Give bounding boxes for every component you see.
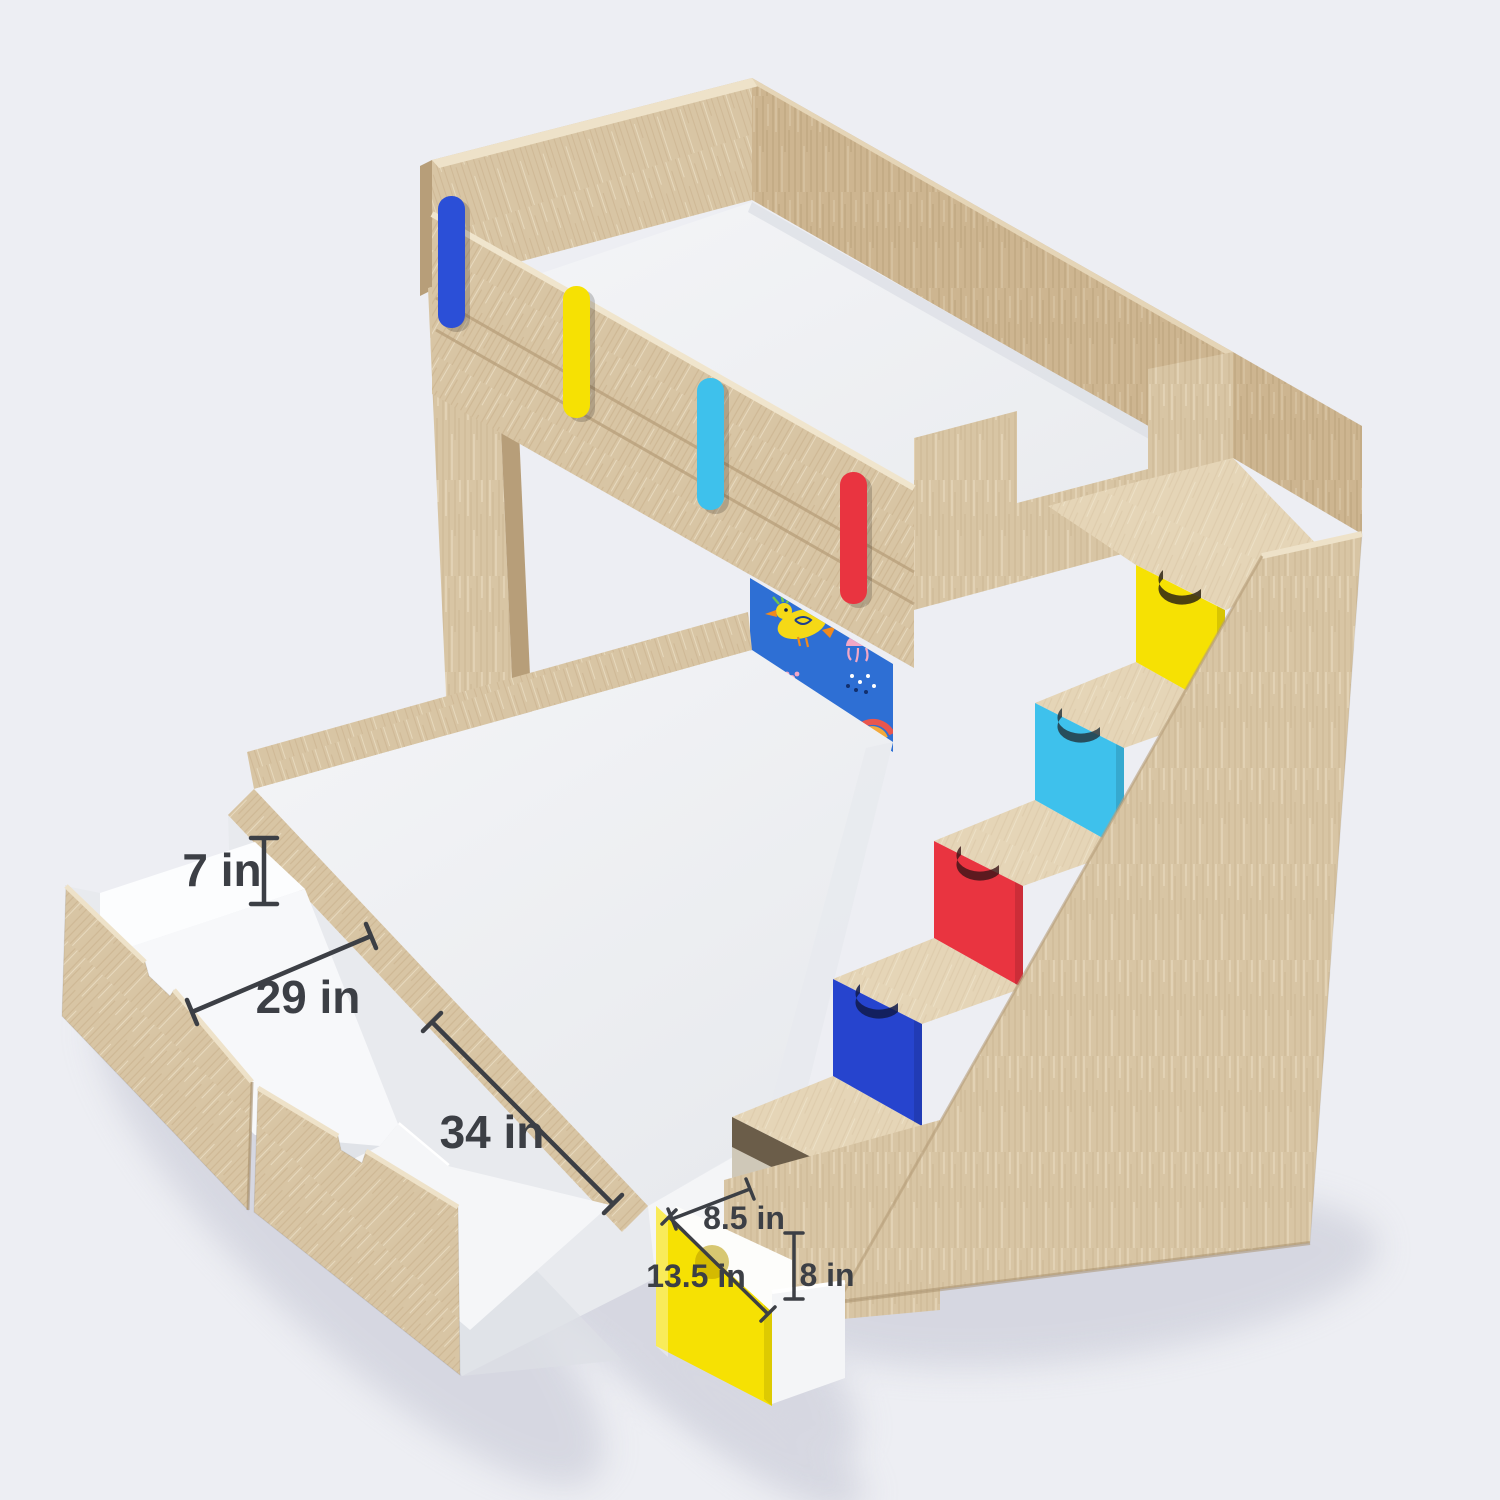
rail-handle-red — [840, 472, 872, 608]
bunk-bed-scene: 7 in 29 in 34 in 8.5 in 13.5 in 8 in — [0, 0, 1500, 1500]
product-render: 7 in 29 in 34 in 8.5 in 13.5 in 8 in — [0, 0, 1500, 1500]
dim-label-compartment-2: 34 in — [440, 1106, 545, 1158]
dim-underbed-height: 7 in — [182, 838, 277, 904]
rail-handle-blue — [438, 196, 470, 332]
dim-label-step-height: 8 in — [799, 1257, 854, 1293]
bunk-left-wall-edge — [420, 160, 432, 296]
stairs-side-panel — [838, 534, 1362, 1302]
dim-label-step-depth: 13.5 in — [646, 1258, 746, 1294]
dim-label-compartment-1: 29 in — [256, 971, 361, 1023]
rail-handle-yellow — [563, 286, 595, 422]
dim-label-step-width: 8.5 in — [703, 1200, 785, 1236]
rail-handle-cyan — [697, 378, 729, 514]
dim-label-underbed-height: 7 in — [182, 844, 261, 896]
